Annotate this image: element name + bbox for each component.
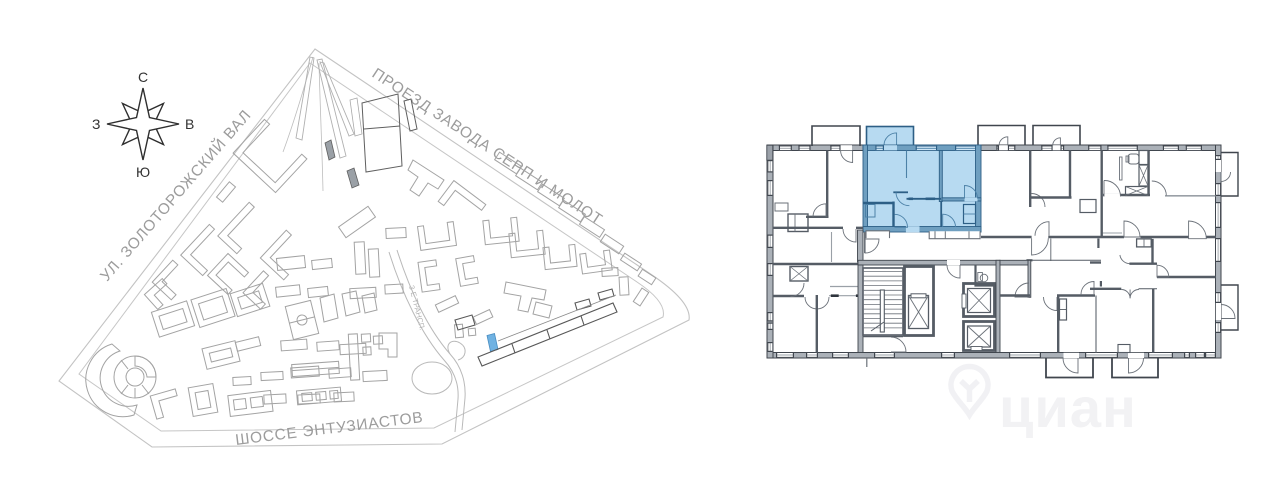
svg-text:В: В: [185, 116, 194, 132]
svg-text:С: С: [138, 69, 148, 85]
svg-text:циан: циан: [999, 376, 1137, 439]
svg-text:З: З: [92, 116, 100, 132]
svg-text:Ю: Ю: [136, 164, 150, 180]
